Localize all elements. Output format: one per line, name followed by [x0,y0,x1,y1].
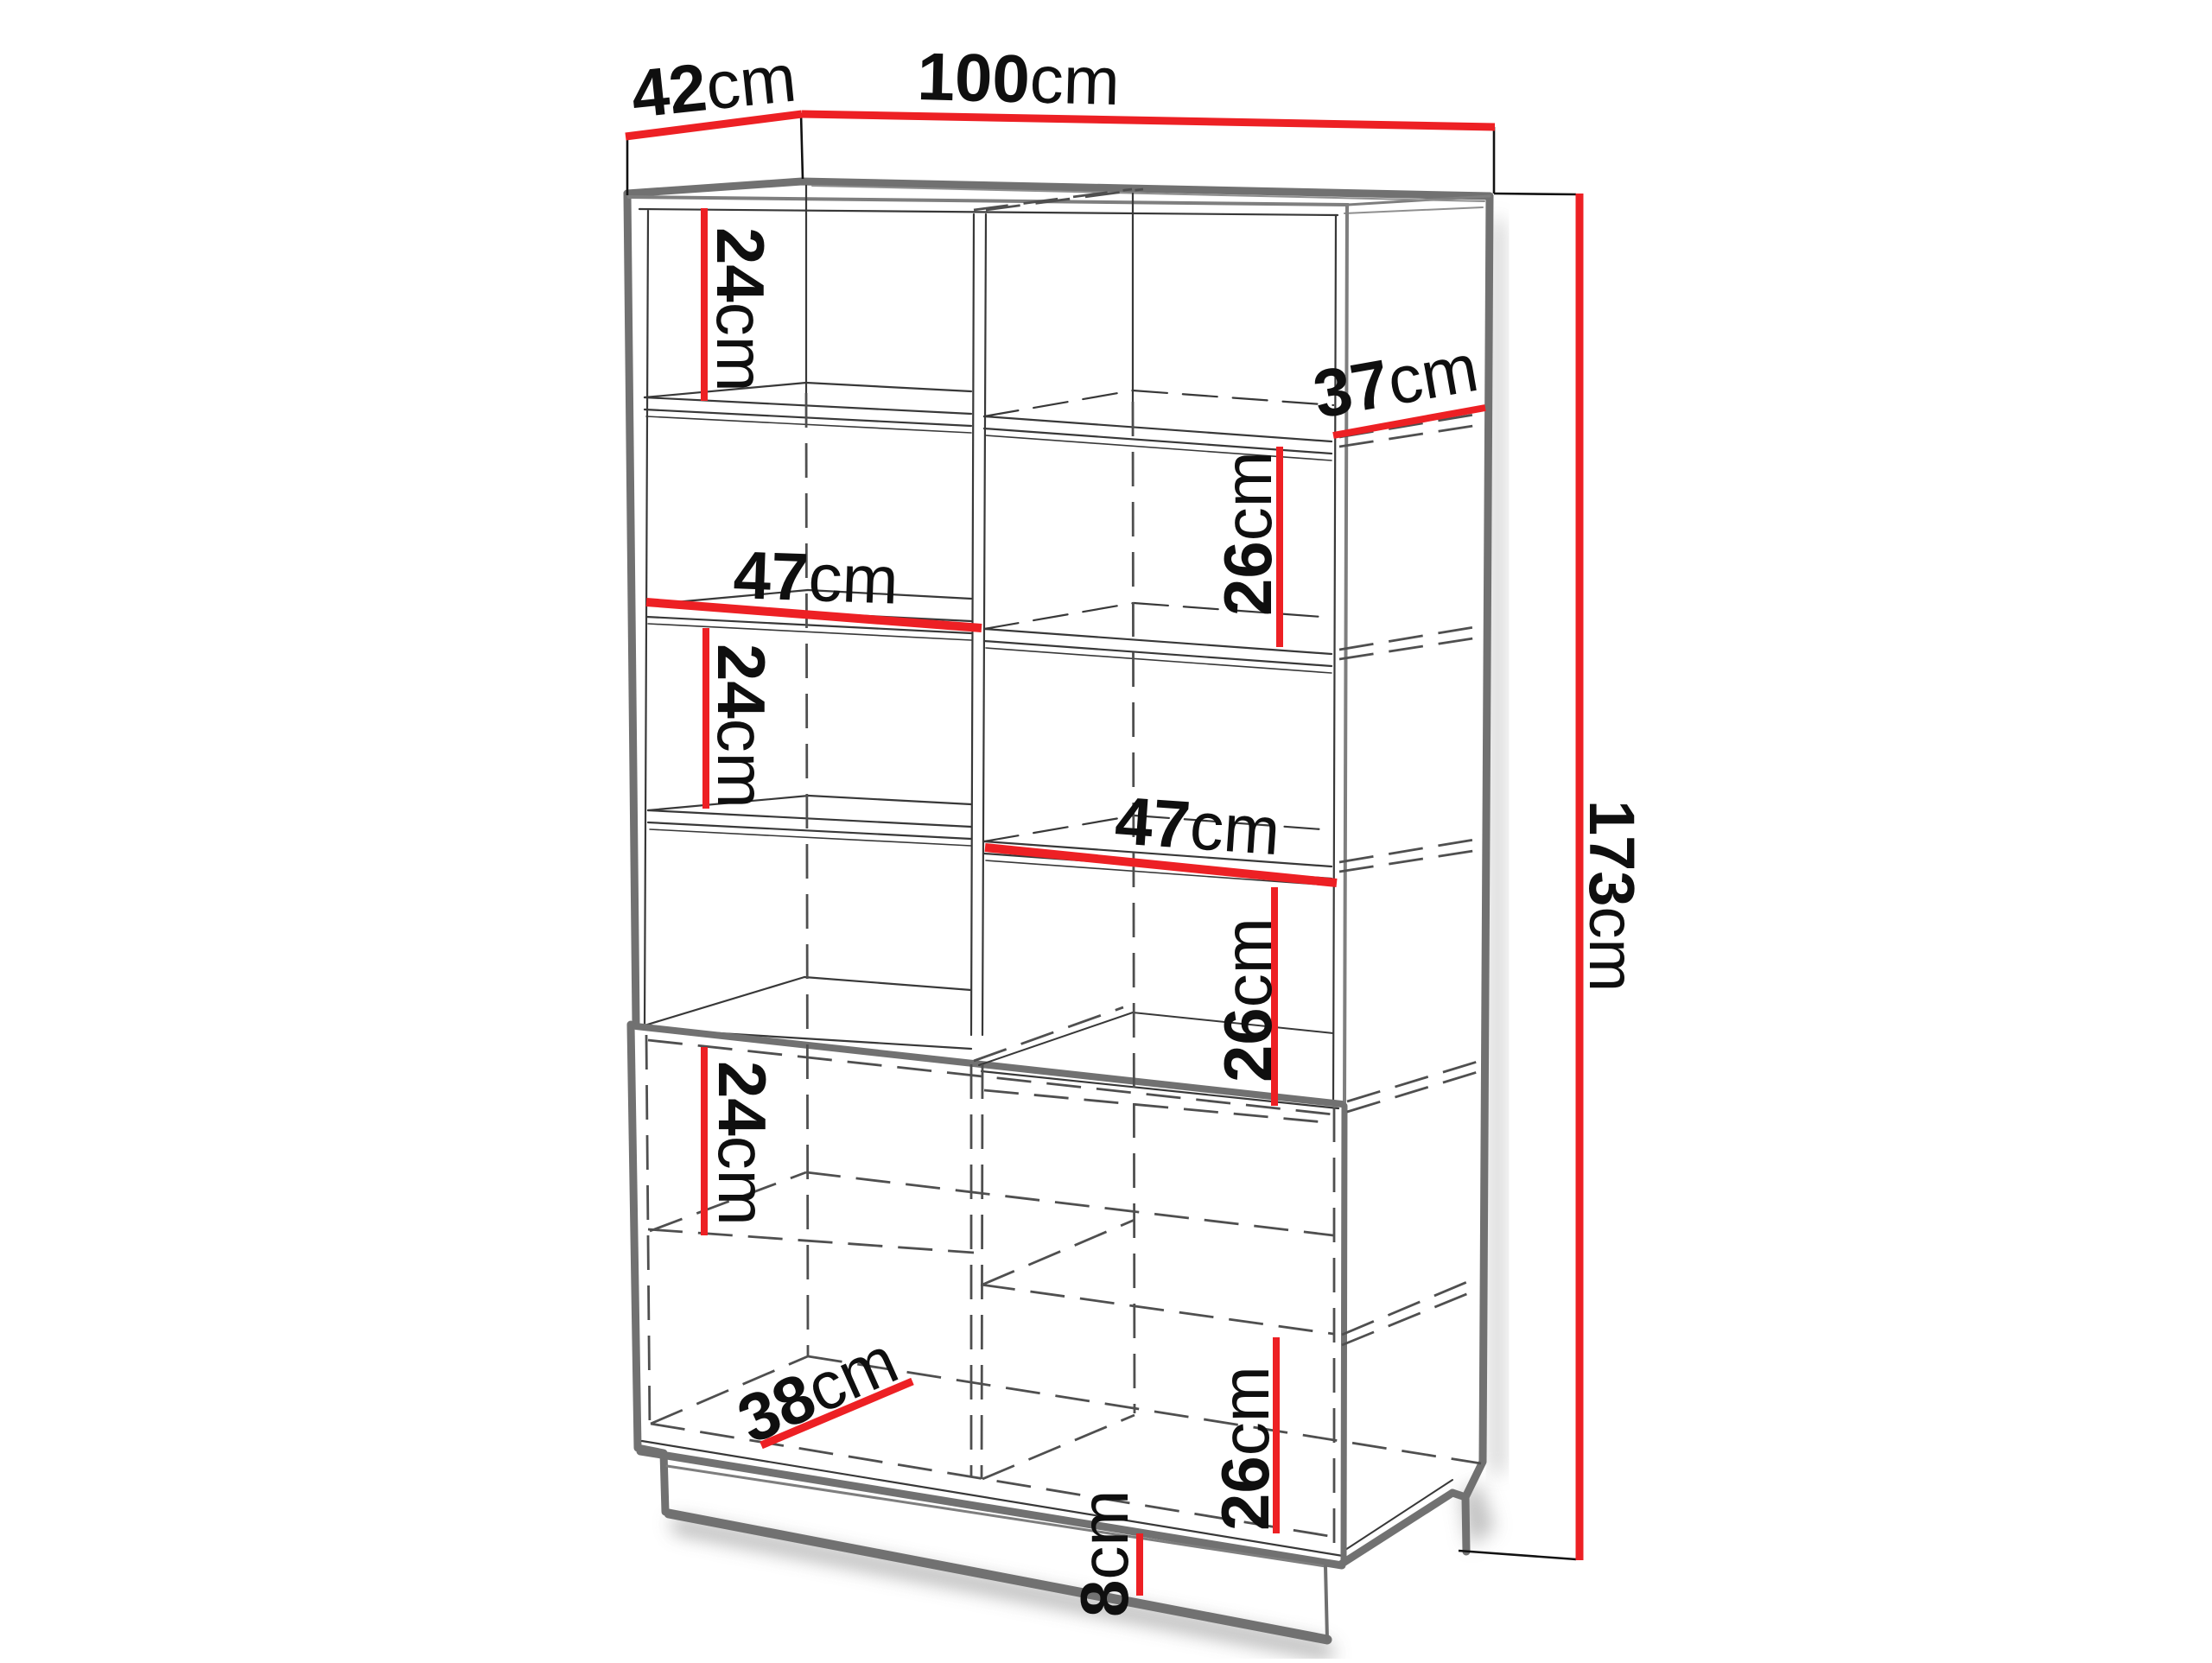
svg-text:26cm: 26cm [1210,451,1286,616]
svg-text:26cm: 26cm [1207,1366,1283,1531]
svg-text:24cm: 24cm [703,644,779,809]
svg-text:100cm: 100cm [917,38,1121,119]
svg-text:24cm: 24cm [704,1061,780,1226]
svg-text:8cm: 8cm [1066,1490,1142,1617]
svg-text:173cm: 173cm [1576,800,1648,992]
svg-text:26cm: 26cm [1210,917,1286,1082]
svg-text:24cm: 24cm [702,227,779,392]
svg-text:47cm: 47cm [732,536,899,619]
svg-text:47cm: 47cm [1113,782,1282,869]
